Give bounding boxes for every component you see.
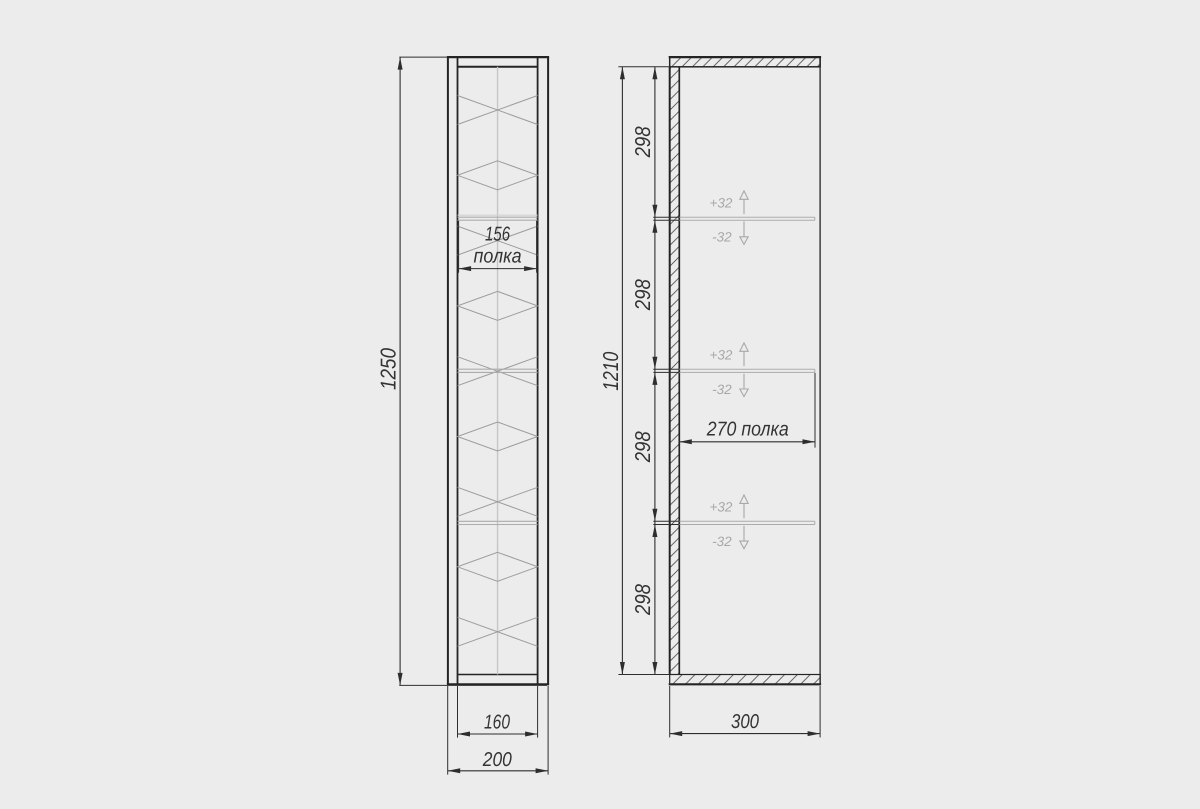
svg-text:200: 200 [482, 749, 512, 771]
svg-text:+32: +32 [709, 348, 732, 363]
svg-text:+32: +32 [709, 500, 732, 515]
svg-text:298: 298 [631, 431, 655, 463]
svg-text:270 полка: 270 полка [706, 418, 789, 440]
svg-text:полка: полка [474, 245, 522, 267]
svg-text:298: 298 [631, 584, 655, 616]
svg-text:-32: -32 [712, 230, 732, 245]
svg-text:156: 156 [485, 224, 511, 246]
svg-text:+32: +32 [709, 196, 732, 211]
svg-text:1210: 1210 [599, 352, 623, 391]
svg-text:1250: 1250 [377, 348, 401, 390]
svg-text:300: 300 [731, 711, 759, 733]
svg-text:298: 298 [631, 126, 655, 158]
svg-text:298: 298 [631, 279, 655, 311]
svg-text:-32: -32 [712, 534, 732, 549]
svg-text:160: 160 [484, 712, 510, 734]
svg-text:-32: -32 [712, 382, 732, 397]
